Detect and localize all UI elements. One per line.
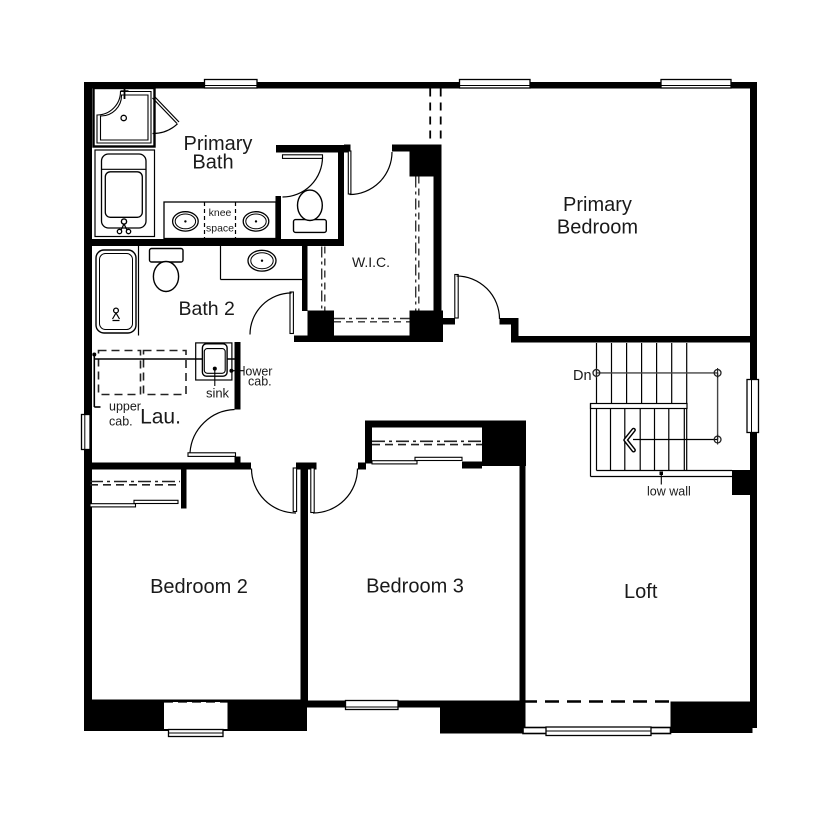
svg-text:Loft: Loft (624, 581, 658, 603)
svg-text:cab.: cab. (248, 374, 272, 388)
svg-text:Dn: Dn (573, 368, 592, 384)
svg-text:Lau.: Lau. (140, 406, 181, 429)
svg-text:space: space (206, 223, 234, 235)
svg-text:cab.: cab. (109, 415, 133, 429)
svg-text:Bedroom 3: Bedroom 3 (366, 575, 464, 597)
svg-text:Bedroom 2: Bedroom 2 (150, 576, 248, 598)
svg-text:sink: sink (206, 386, 230, 401)
svg-text:knee: knee (209, 207, 232, 219)
svg-text:low wall: low wall (647, 485, 691, 499)
svg-text:upper: upper (109, 400, 141, 414)
svg-text:Bath 2: Bath 2 (179, 298, 235, 320)
svg-text:W.I.C.: W.I.C. (352, 254, 390, 270)
svg-text:Bath: Bath (192, 152, 233, 174)
svg-text:Bedroom: Bedroom (557, 217, 638, 239)
svg-text:Primary: Primary (563, 194, 632, 216)
